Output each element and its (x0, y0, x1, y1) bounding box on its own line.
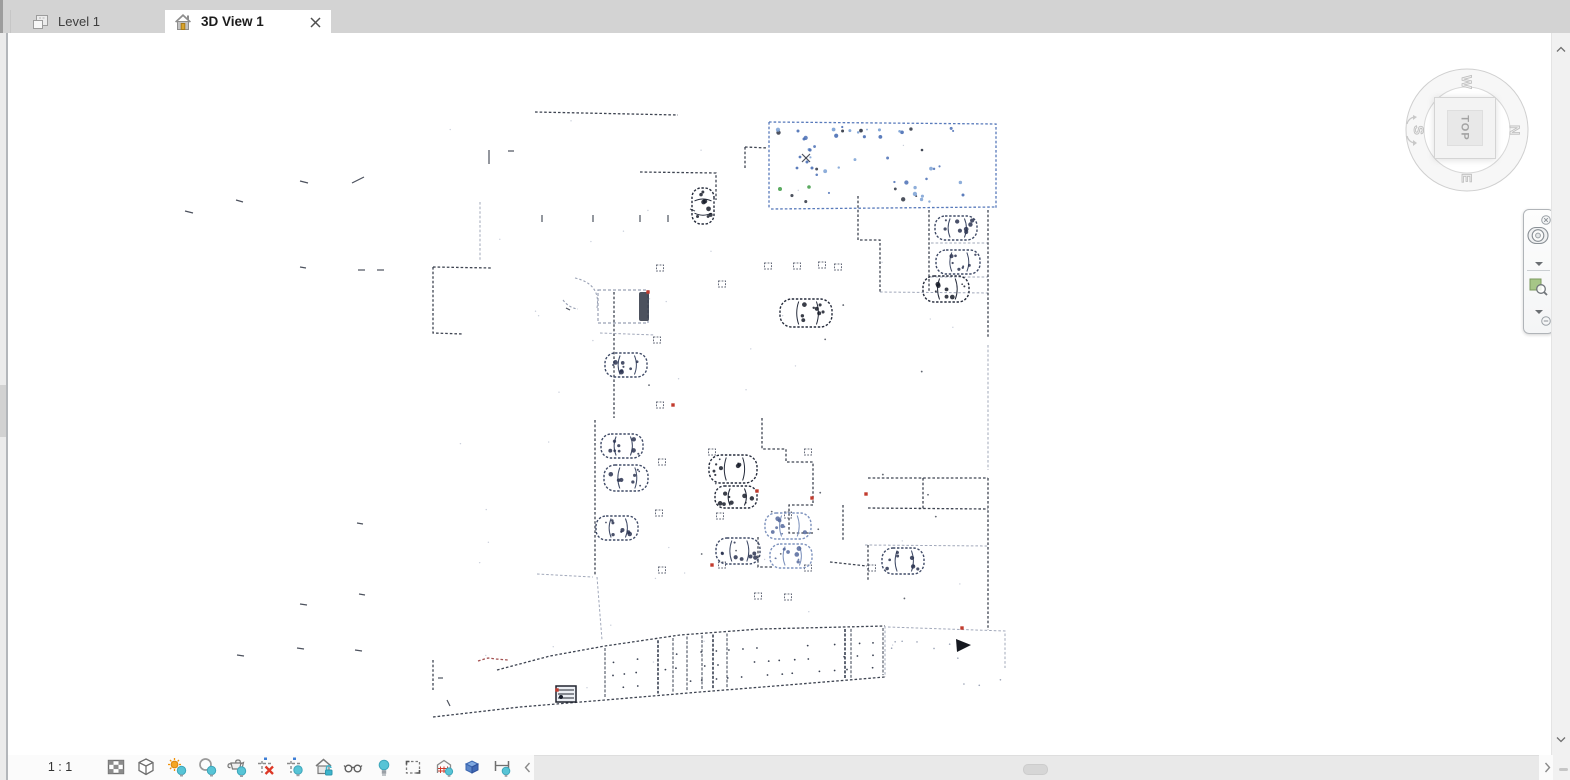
tab-3d-view-1[interactable]: 3D View 1 (165, 10, 331, 33)
viewcube-face-label: TOP (1459, 115, 1471, 140)
horizontal-scrollbar[interactable] (534, 755, 1539, 780)
show-crop-region-icon[interactable] (285, 757, 305, 777)
left-gutter-thumb[interactable] (0, 385, 6, 437)
resize-grip[interactable] (1559, 768, 1568, 771)
compass-south[interactable]: S (1411, 125, 1427, 134)
viewcube[interactable]: W N E S TOP (1401, 64, 1529, 192)
wheel-menu-caret-icon[interactable] (1535, 262, 1543, 266)
unlocked-3d-view-icon[interactable] (314, 757, 334, 777)
compass-west[interactable]: W (1459, 75, 1475, 89)
scroll-up-icon[interactable] (1556, 40, 1566, 58)
show-rendering-dialog-icon[interactable] (227, 757, 247, 777)
revit-view-window: Level 1 3D View 1 (0, 0, 1570, 780)
viewcube-top-face[interactable]: TOP (1434, 97, 1496, 159)
tab-level-1[interactable]: Level 1 (10, 10, 166, 33)
view-tab-bar: Level 1 3D View 1 (0, 0, 1570, 33)
view-control-bar: 1 : 1 (8, 755, 1570, 780)
scroll-right-icon[interactable] (1540, 755, 1554, 780)
compass-north[interactable]: N (1507, 125, 1523, 135)
reveal-hidden-elements-icon[interactable] (374, 757, 394, 777)
temporary-view-properties-icon[interactable] (403, 757, 423, 777)
analytical-model-icon[interactable] (434, 757, 454, 777)
scroll-down-icon[interactable] (1556, 730, 1566, 748)
floor-plan-icon (32, 14, 49, 30)
navbar-minimize-icon[interactable] (1541, 313, 1551, 331)
scroll-left-icon[interactable] (520, 755, 534, 780)
displacement-sets-icon[interactable] (462, 757, 482, 777)
home-icon (174, 13, 192, 30)
scale-control[interactable]: 1 : 1 (30, 755, 90, 780)
tab-bar-notch (0, 0, 3, 33)
left-edge-gutter (0, 33, 8, 780)
tab-label: Level 1 (58, 14, 100, 29)
viewcube-top-face-inner: TOP (1447, 110, 1483, 146)
sun-path-icon[interactable] (167, 757, 187, 777)
detail-level-icon[interactable] (106, 757, 126, 777)
point-cloud-view[interactable] (0, 0, 1570, 780)
horizontal-scrollbar-thumb[interactable] (1023, 764, 1048, 775)
steering-wheel-icon[interactable] (1527, 225, 1549, 252)
compass-east[interactable]: E (1459, 173, 1475, 182)
temporary-hide-isolate-icon[interactable] (343, 757, 363, 777)
crop-view-icon[interactable] (256, 757, 276, 777)
zoom-region-icon[interactable] (1528, 276, 1548, 301)
visual-style-icon[interactable] (136, 757, 156, 777)
close-tab-icon[interactable] (307, 14, 323, 30)
navigation-bar (1523, 209, 1554, 334)
navbar-divider (1527, 270, 1550, 271)
shadows-icon[interactable] (197, 757, 217, 777)
tab-label: 3D View 1 (201, 14, 264, 29)
vertical-scrollbar[interactable] (1551, 33, 1570, 755)
reveal-constraints-icon[interactable] (492, 757, 512, 777)
scrollbar-corner (1553, 755, 1570, 780)
